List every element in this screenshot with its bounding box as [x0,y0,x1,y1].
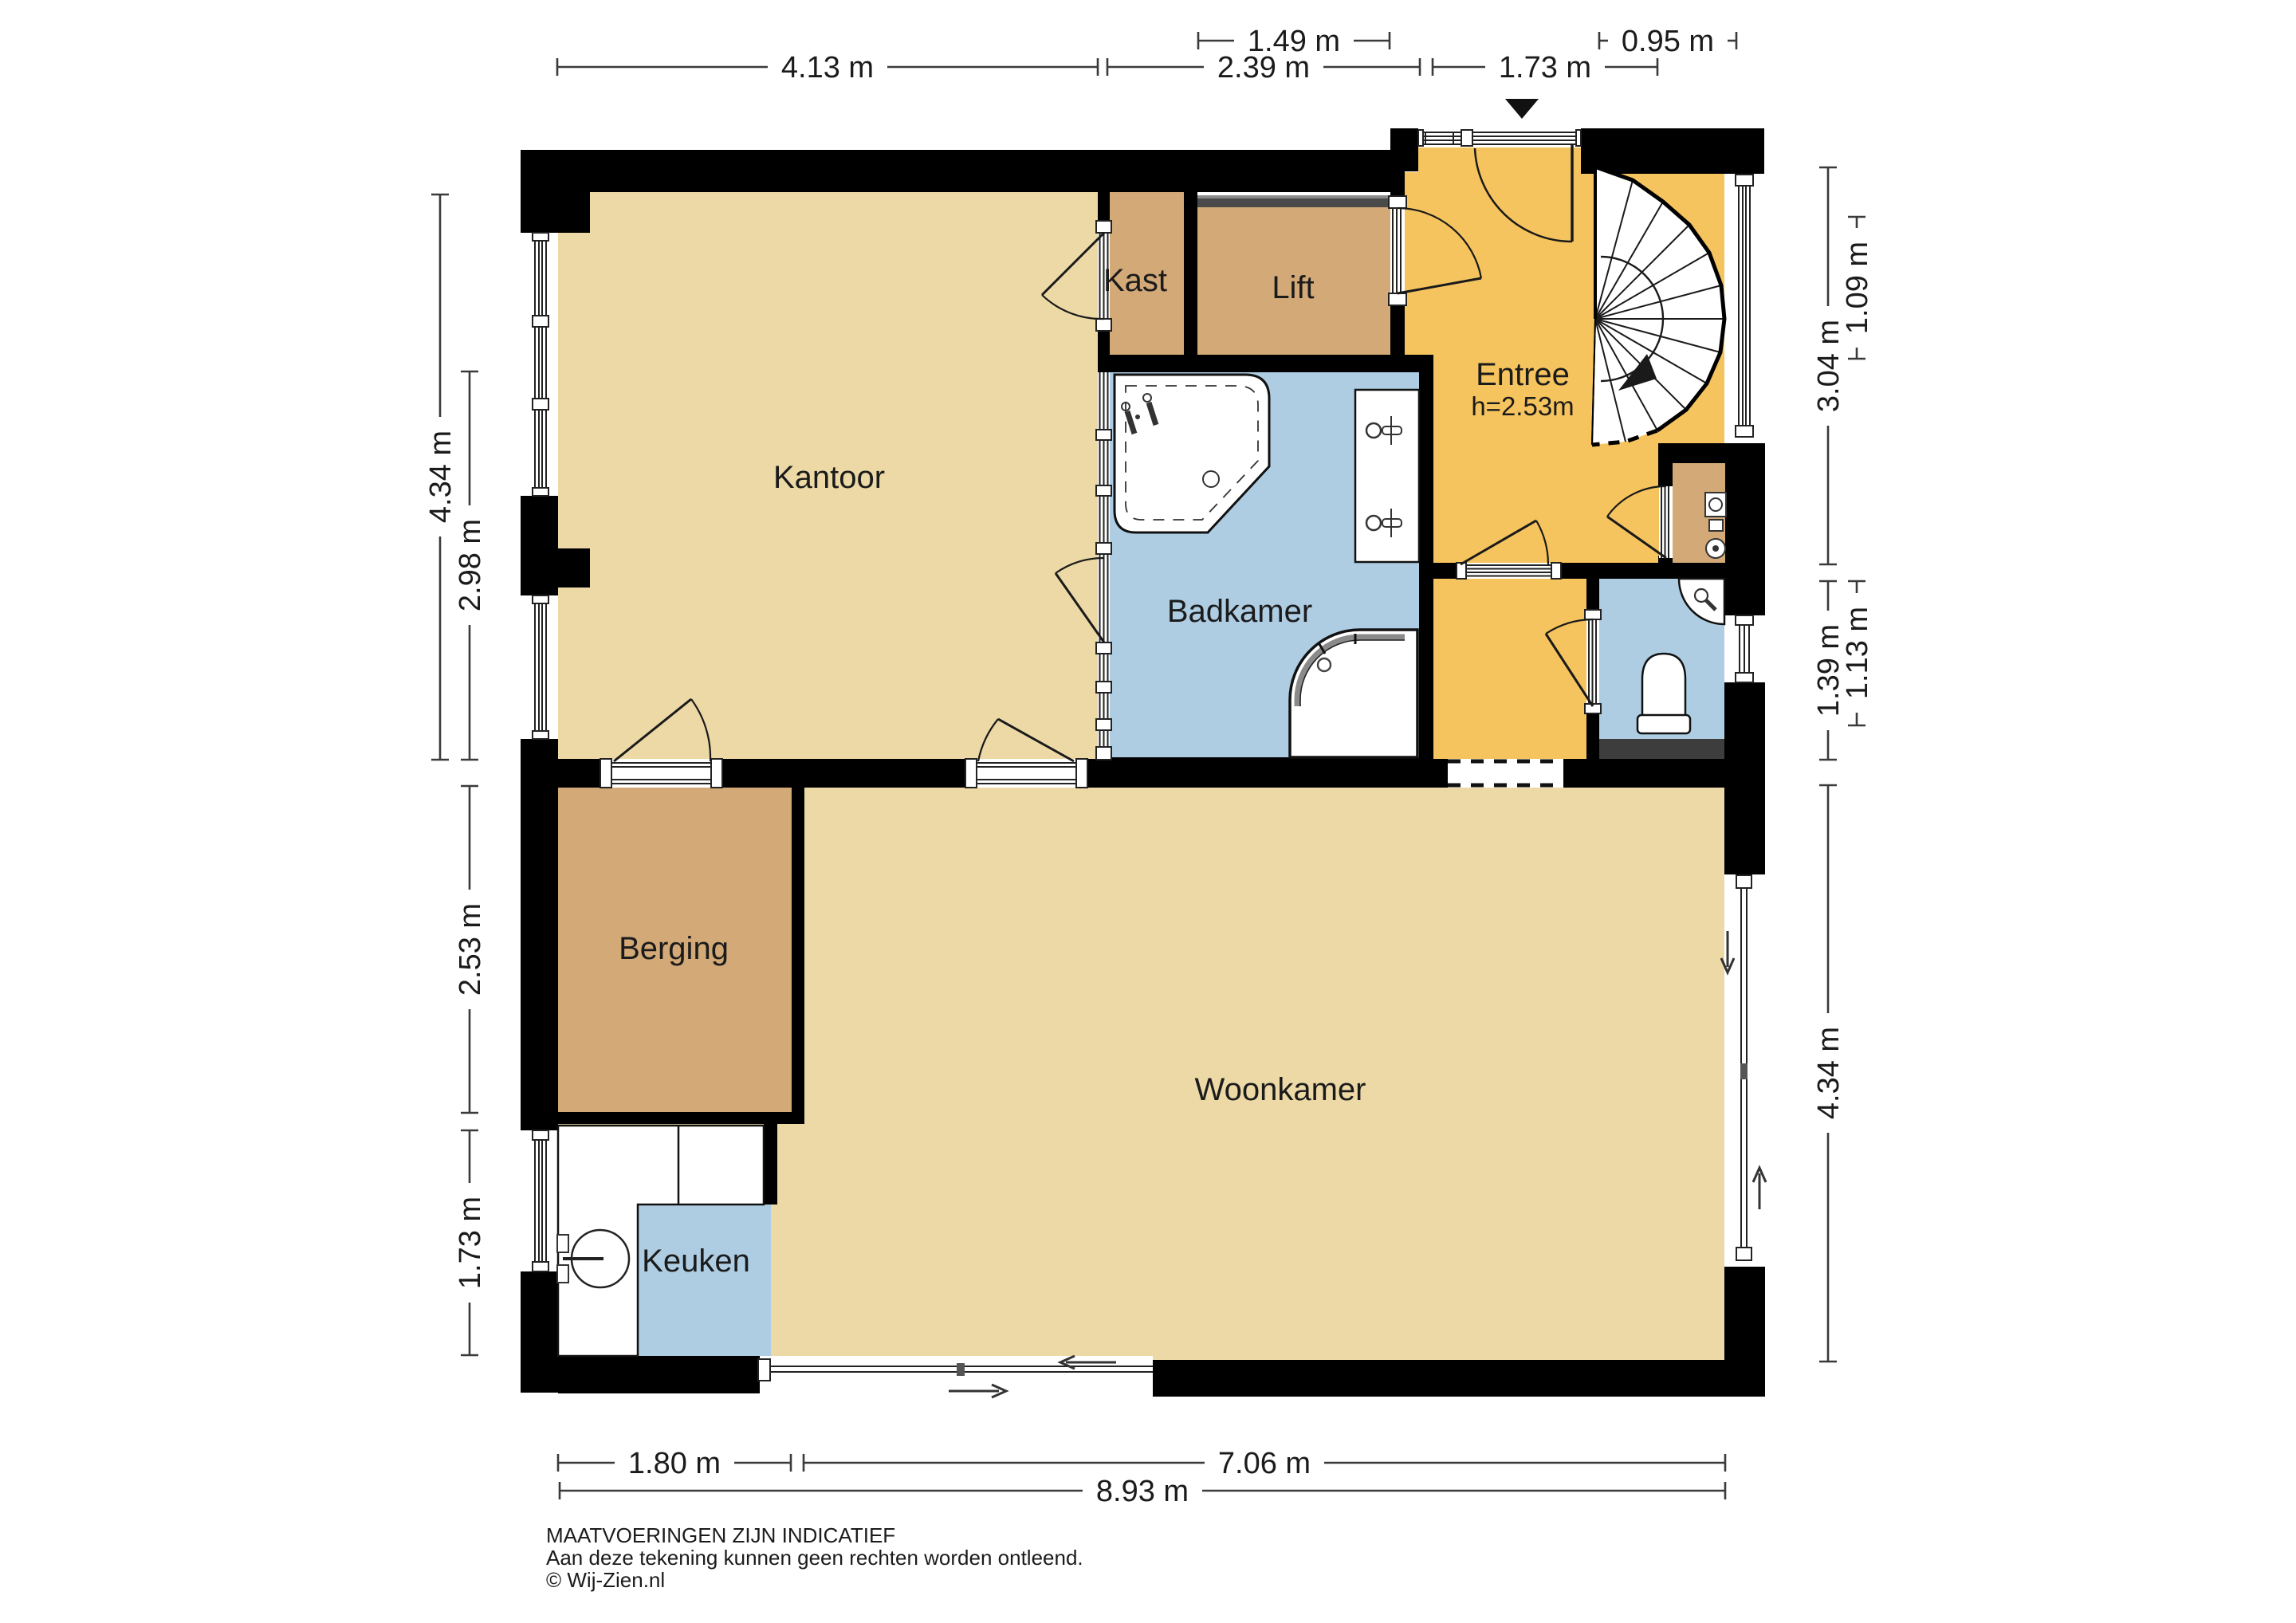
svg-text:MAATVOERINGEN ZIJN INDICATIEF: MAATVOERINGEN ZIJN INDICATIEF [546,1523,895,1547]
svg-text:Kast: Kast [1103,263,1167,298]
svg-text:8.93 m: 8.93 m [1096,1475,1189,1508]
svg-text:4.13 m: 4.13 m [781,51,874,84]
svg-text:7.06 m: 7.06 m [1218,1447,1311,1480]
svg-text:4.34 m: 4.34 m [1812,1027,1846,1119]
svg-text:Keuken: Keuken [642,1244,750,1279]
svg-text:h=2.53m: h=2.53m [1471,391,1574,421]
svg-text:1.13 m: 1.13 m [1841,607,1874,699]
svg-text:© Wij-Zien.nl: © Wij-Zien.nl [546,1568,665,1592]
svg-text:1.73 m: 1.73 m [454,1197,487,1289]
svg-text:Kantoor: Kantoor [773,460,885,495]
svg-text:2.53 m: 2.53 m [454,903,487,996]
svg-text:0.95 m: 0.95 m [1622,25,1714,58]
svg-text:1.09 m: 1.09 m [1841,242,1874,334]
svg-text:Lift: Lift [1272,270,1314,305]
svg-text:1.73 m: 1.73 m [1499,51,1591,84]
svg-text:Badkamer: Badkamer [1167,594,1312,629]
svg-text:Aan deze tekening kunnen geen: Aan deze tekening kunnen geen rechten wo… [546,1546,1083,1570]
svg-text:Entree: Entree [1476,357,1570,392]
svg-text:4.34 m: 4.34 m [424,430,458,523]
svg-text:Woonkamer: Woonkamer [1195,1072,1366,1107]
svg-text:1.80 m: 1.80 m [628,1447,721,1480]
svg-text:2.98 m: 2.98 m [454,519,487,611]
svg-text:Berging: Berging [619,931,729,966]
svg-text:1.49 m: 1.49 m [1248,25,1340,58]
